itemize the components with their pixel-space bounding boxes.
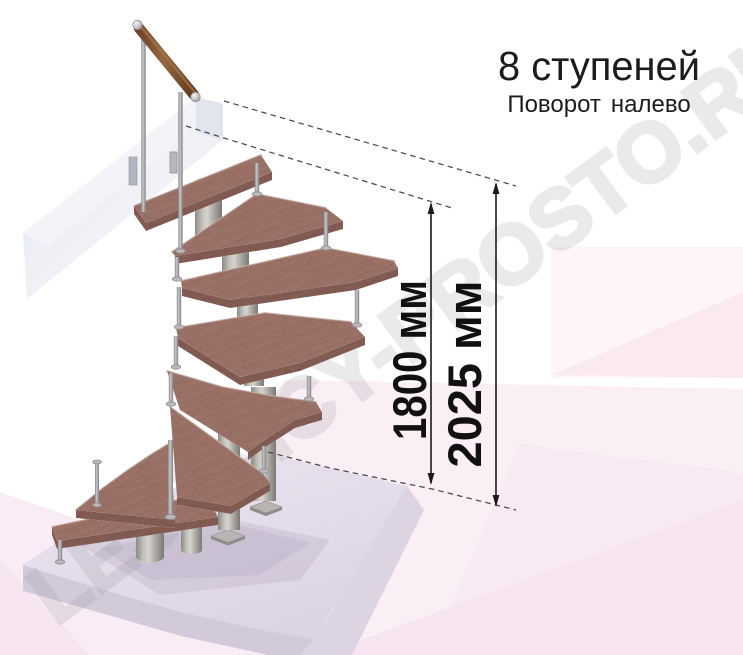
svg-text:8 ступеней: 8 ступеней: [498, 43, 700, 89]
svg-text:1800 мм: 1800 мм: [383, 280, 436, 440]
svg-text:2025 мм: 2025 мм: [438, 281, 491, 468]
svg-text:Поворотналево: Поворотналево: [507, 91, 690, 118]
